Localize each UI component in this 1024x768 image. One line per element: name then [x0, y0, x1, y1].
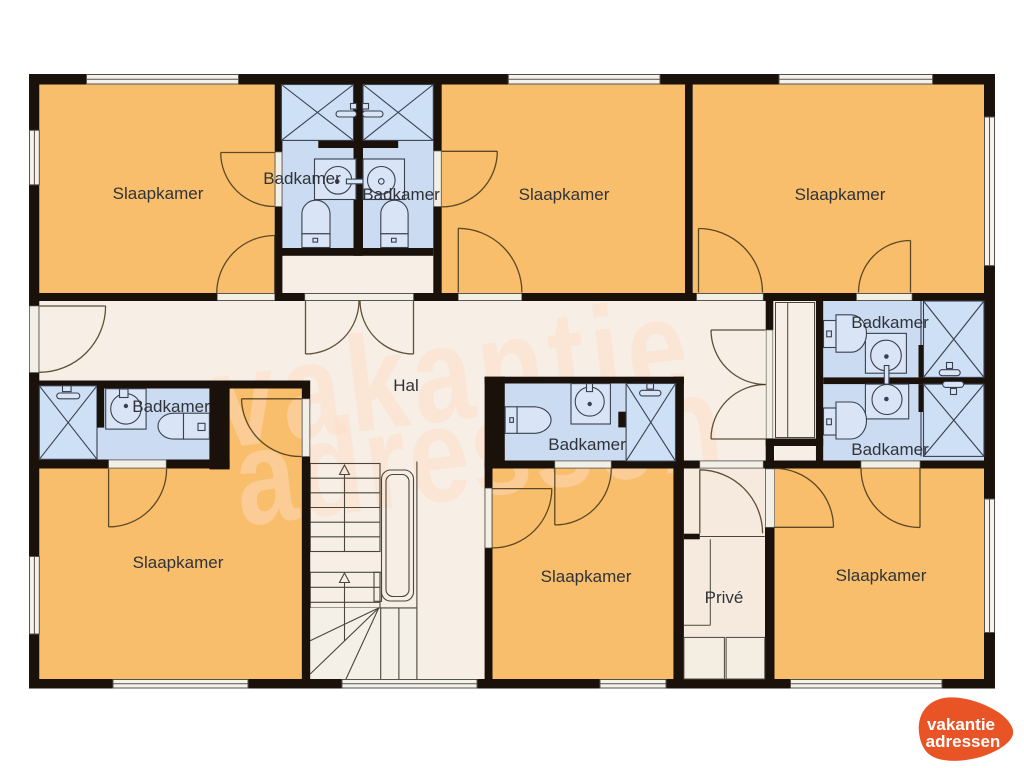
svg-text:Badkamer: Badkamer [548, 435, 626, 454]
svg-text:Slaapkamer: Slaapkamer [795, 185, 886, 204]
svg-text:Badkamer: Badkamer [851, 313, 929, 332]
svg-text:adressen: adressen [926, 732, 1001, 751]
svg-text:Privé: Privé [705, 588, 744, 607]
svg-text:Badkamer: Badkamer [362, 185, 440, 204]
svg-text:Slaapkamer: Slaapkamer [541, 567, 632, 586]
svg-text:Slaapkamer: Slaapkamer [133, 553, 224, 572]
svg-text:Badkamer: Badkamer [851, 440, 929, 459]
svg-text:Badkamer: Badkamer [132, 397, 210, 416]
svg-text:Slaapkamer: Slaapkamer [113, 184, 204, 203]
svg-text:Slaapkamer: Slaapkamer [519, 185, 610, 204]
svg-text:Hal: Hal [393, 376, 419, 395]
svg-text:Badkamer: Badkamer [263, 169, 341, 188]
svg-text:Slaapkamer: Slaapkamer [836, 566, 927, 585]
